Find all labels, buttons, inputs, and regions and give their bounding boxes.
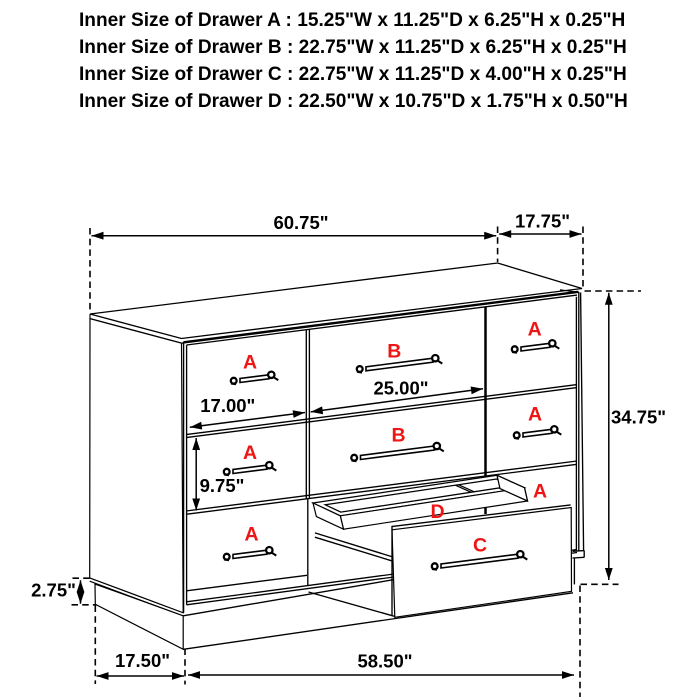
svg-text:60.75": 60.75" — [273, 212, 328, 233]
svg-text:Inner Size of Drawer C : 22.75: Inner Size of Drawer C : 22.75"W x 11.25… — [79, 64, 627, 85]
svg-text:D: D — [430, 501, 444, 523]
svg-text:9.75": 9.75" — [200, 475, 245, 496]
svg-text:17.50": 17.50" — [115, 650, 170, 671]
svg-text:A: A — [528, 319, 542, 341]
svg-text:B: B — [387, 341, 401, 363]
svg-text:A: A — [244, 523, 258, 545]
svg-text:A: A — [243, 442, 257, 464]
svg-text:34.75": 34.75" — [611, 407, 666, 428]
svg-text:A: A — [528, 404, 542, 426]
svg-text:Inner Size of Drawer B : 22.75: Inner Size of Drawer B : 22.75"W x 11.25… — [79, 37, 627, 58]
svg-text:A: A — [243, 351, 257, 373]
svg-text:B: B — [392, 425, 406, 447]
svg-text:Inner Size of Drawer D : 22.5: Inner Size of Drawer D : 22.50"W x 10.75… — [79, 91, 628, 112]
svg-text:2.75": 2.75" — [31, 580, 76, 601]
svg-text:17.00": 17.00" — [200, 395, 255, 416]
svg-text:Inner Size of Drawer A : 15.25: Inner Size of Drawer A : 15.25"W x 11.25… — [79, 10, 625, 31]
svg-text:17.75": 17.75" — [515, 211, 570, 232]
svg-text:58.50": 58.50" — [357, 651, 412, 672]
svg-text:C: C — [473, 535, 487, 557]
svg-text:25.00": 25.00" — [373, 378, 428, 399]
svg-text:A: A — [533, 480, 547, 502]
